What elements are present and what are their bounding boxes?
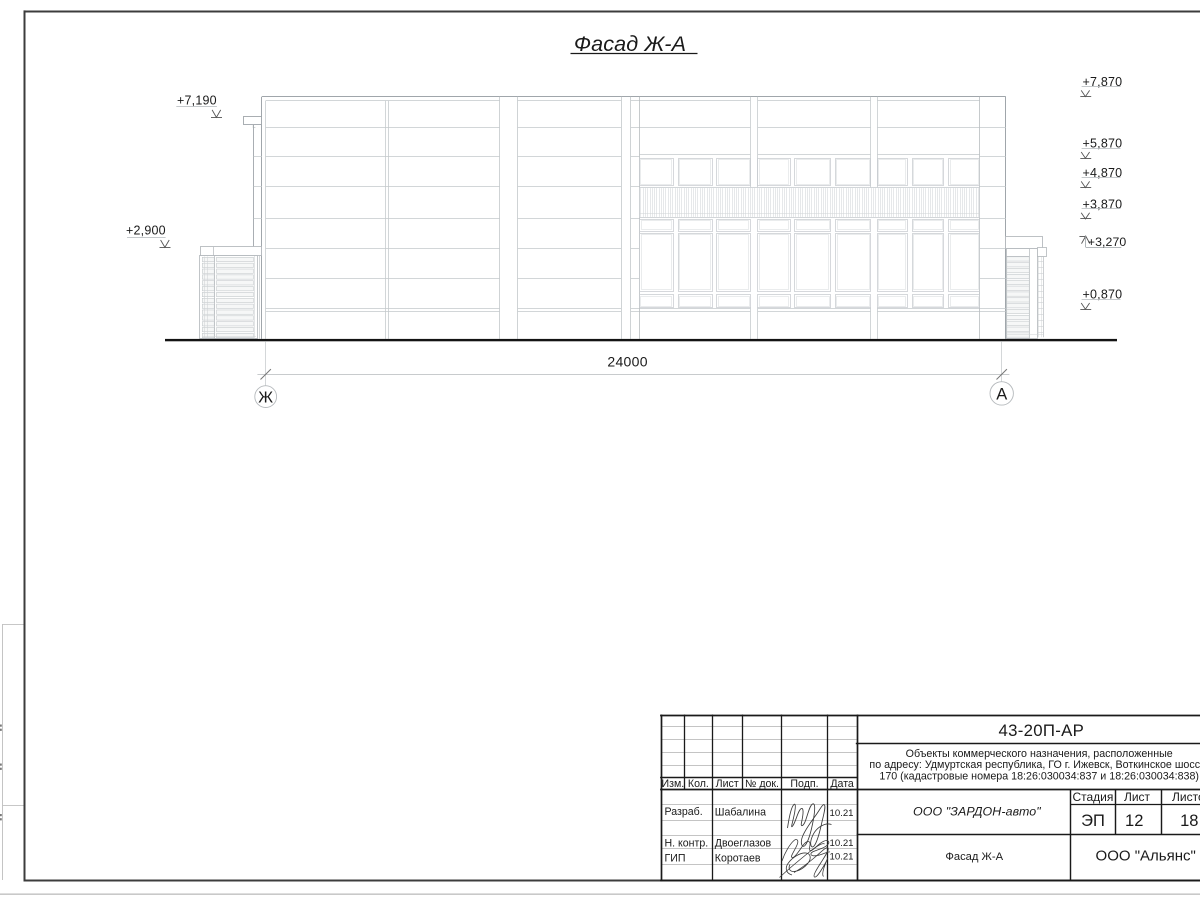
svg-text:Стадия: Стадия <box>1072 790 1113 804</box>
svg-text:Шабалина: Шабалина <box>715 806 766 818</box>
svg-text:ЭП: ЭП <box>1081 812 1105 830</box>
svg-text:Коротаев: Коротаев <box>715 852 761 864</box>
svg-text:ГИП: ГИП <box>665 852 686 864</box>
svg-text:Фасад Ж-А: Фасад Ж-А <box>945 851 1003 863</box>
svg-text:18: 18 <box>1180 812 1198 830</box>
svg-text:Фасад Ж-А: Фасад Ж-А <box>574 31 686 56</box>
svg-text:170 (кадастровые номера 18:26:: 170 (кадастровые номера 18:26:030034:837… <box>879 770 1199 782</box>
svg-text:+7,190: +7,190 <box>177 94 217 108</box>
svg-text:+2,900: +2,900 <box>126 224 166 238</box>
svg-text:43-20П-АР: 43-20П-АР <box>998 721 1084 740</box>
svg-text:Изм.: Изм. <box>662 778 685 790</box>
svg-text:Разраб.: Разраб. <box>665 806 703 818</box>
svg-text:Подп.: Подп. <box>790 778 818 790</box>
svg-text:ООО "ЗАРДОН-авто": ООО "ЗАРДОН-авто" <box>913 804 1041 818</box>
svg-text:Листов: Листов <box>1172 790 1200 804</box>
svg-text:№ док.: № док. <box>745 778 779 790</box>
svg-text:Объекты коммерческого назначен: Объекты коммерческого назначения, распол… <box>906 748 1173 760</box>
svg-text:+3,870: +3,870 <box>1083 197 1123 211</box>
svg-text:12: 12 <box>1125 812 1143 830</box>
svg-text:ООО "Альянс": ООО "Альянс" <box>1096 848 1196 865</box>
svg-text:Дата: Дата <box>830 778 854 790</box>
svg-text:24000: 24000 <box>607 354 647 370</box>
svg-text:Н. контр.: Н. контр. <box>665 838 709 850</box>
svg-text:Кол.: Кол. <box>688 778 709 790</box>
svg-text:10.21: 10.21 <box>829 808 853 819</box>
svg-text:Двоеглазов: Двоеглазов <box>715 838 772 850</box>
svg-text:+3,270: +3,270 <box>1088 235 1127 249</box>
svg-text:по адресу: Удмуртская республи: по адресу: Удмуртская республика, ГО г. … <box>869 759 1200 771</box>
svg-text:Лист: Лист <box>1124 790 1151 804</box>
svg-text:А: А <box>996 385 1007 403</box>
svg-text:Лист: Лист <box>716 778 739 790</box>
svg-text:10.21: 10.21 <box>829 852 853 863</box>
svg-text:Ж: Ж <box>258 389 273 406</box>
svg-text:10.21: 10.21 <box>829 838 853 849</box>
